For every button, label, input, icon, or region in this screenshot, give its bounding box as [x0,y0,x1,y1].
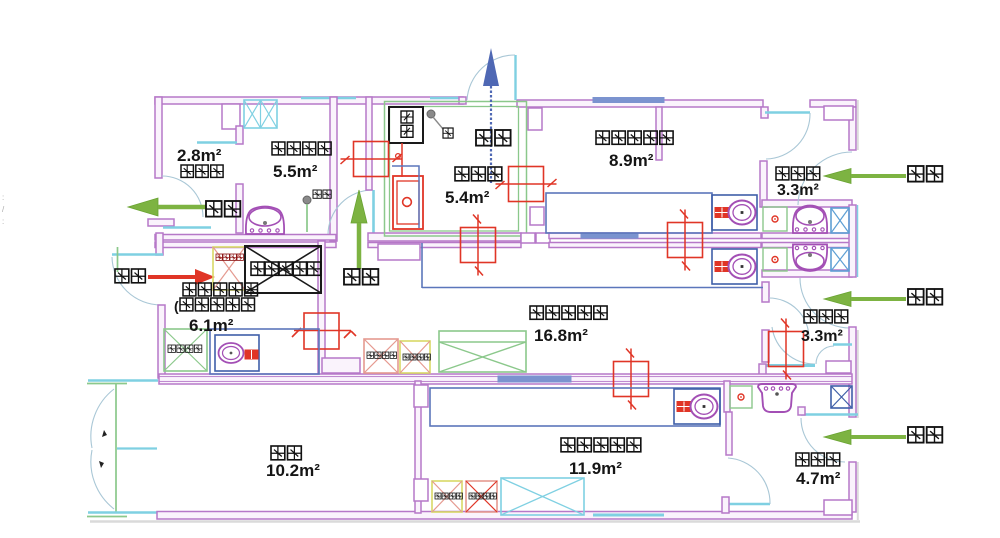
svg-text:2.8m²: 2.8m² [177,146,222,165]
svg-text:10.2m²: 10.2m² [266,461,320,480]
svg-text:16.8m²: 16.8m² [534,326,588,345]
svg-text:11.9m²: 11.9m² [569,459,622,478]
svg-text::: : [2,217,4,226]
svg-text:4.7m²: 4.7m² [796,469,841,488]
svg-text:(: ( [174,298,179,314]
svg-text::: : [2,193,4,202]
svg-text:6.1m²: 6.1m² [189,316,234,335]
svg-text:/: / [2,205,5,214]
svg-text:5.5m²: 5.5m² [273,162,318,181]
svg-text:8.9m²: 8.9m² [609,151,654,170]
svg-text:3.3m²: 3.3m² [801,328,843,345]
svg-text:5.4m²: 5.4m² [445,188,490,207]
svg-text:3.3m²: 3.3m² [777,182,819,199]
